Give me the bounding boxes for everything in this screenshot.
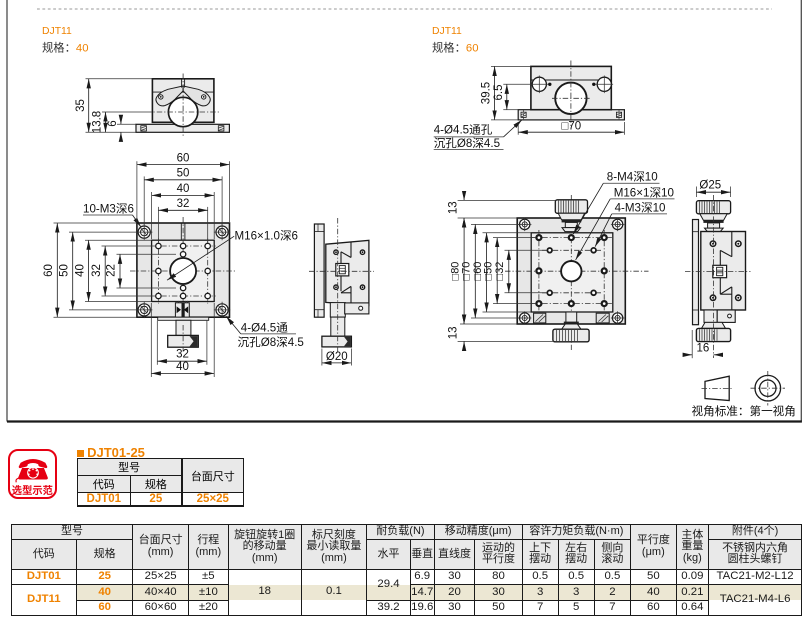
svg-text:沉孔Ø8深4.5: 沉孔Ø8深4.5 <box>434 136 500 150</box>
svg-text:40: 40 <box>74 264 86 277</box>
svg-text:13: 13 <box>448 327 460 340</box>
svg-text:规格：40: 规格：40 <box>42 41 88 55</box>
svg-text:DJT11: DJT11 <box>432 26 462 37</box>
svg-text:4-M3深10: 4-M3深10 <box>615 200 666 214</box>
svg-text:22: 22 <box>106 264 118 277</box>
svg-text:60: 60 <box>177 152 190 164</box>
svg-text:M16×1.0深6: M16×1.0深6 <box>235 229 298 243</box>
svg-text:32: 32 <box>91 264 103 277</box>
svg-text:8-M4深10: 8-M4深10 <box>607 170 658 184</box>
svg-text:□70: □70 <box>461 262 473 281</box>
svg-text:6: 6 <box>107 120 119 126</box>
svg-text:39.5: 39.5 <box>480 82 492 104</box>
svg-text:□50: □50 <box>483 262 495 281</box>
svg-text:40: 40 <box>177 183 190 195</box>
svg-text:50: 50 <box>177 168 190 180</box>
svg-text:16: 16 <box>697 343 710 355</box>
svg-text:Ø20: Ø20 <box>326 351 348 363</box>
svg-text:32: 32 <box>176 349 189 361</box>
svg-text:沉孔Ø8深4.5: 沉孔Ø8深4.5 <box>238 335 304 349</box>
svg-text:规格：60: 规格：60 <box>432 41 478 55</box>
svg-text:Ø25: Ø25 <box>699 179 721 191</box>
svg-text:13: 13 <box>448 201 460 214</box>
svg-text:M16×1深10: M16×1深10 <box>614 185 674 199</box>
svg-text:DJT11: DJT11 <box>42 26 72 37</box>
svg-text:40: 40 <box>176 361 189 373</box>
svg-text:35: 35 <box>75 99 87 112</box>
svg-text:□80: □80 <box>450 262 462 281</box>
svg-text:32: 32 <box>177 198 190 210</box>
svg-text:□70: □70 <box>561 120 581 132</box>
svg-text:4-Ø4.5通: 4-Ø4.5通 <box>241 321 288 334</box>
svg-text:10-M3深6: 10-M3深6 <box>83 202 134 216</box>
svg-text:13.8: 13.8 <box>92 111 104 133</box>
svg-text:50: 50 <box>58 264 70 277</box>
svg-text:6.5: 6.5 <box>493 85 505 101</box>
svg-text:4-Ø4.5通孔: 4-Ø4.5通孔 <box>434 124 493 137</box>
svg-text:视角标准：第一视角: 视角标准：第一视角 <box>692 404 796 418</box>
svg-text:□32: □32 <box>494 262 506 281</box>
svg-text:60: 60 <box>43 264 55 277</box>
